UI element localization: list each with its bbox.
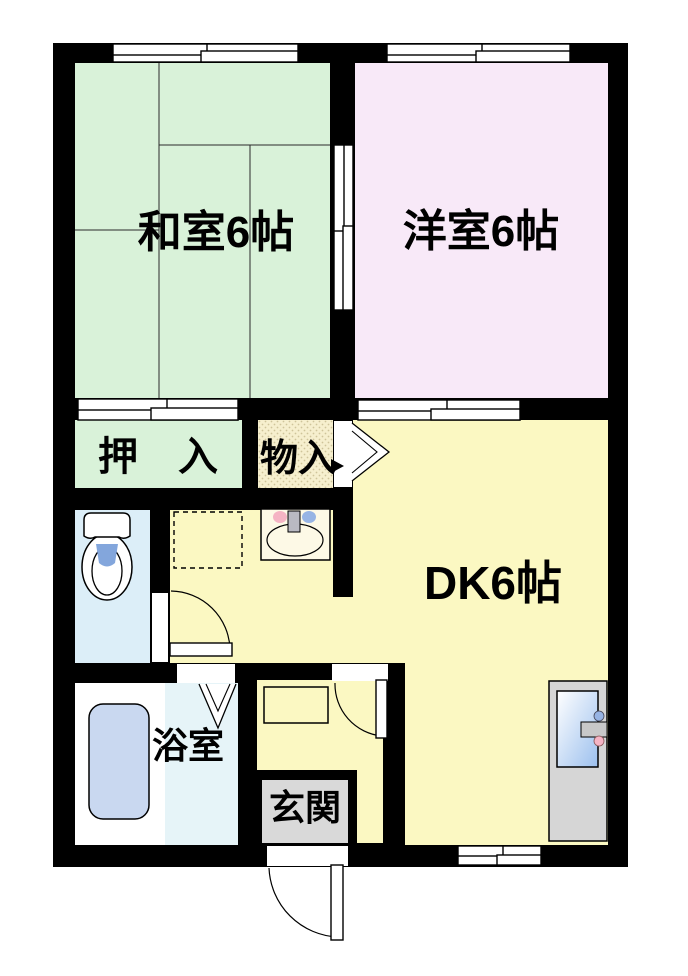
- monoire-door-opening: [334, 421, 352, 487]
- toilet-water: [96, 544, 118, 567]
- hall-door-opening: [332, 664, 388, 681]
- youshitsu-label: 洋室6帖: [403, 206, 559, 256]
- dk-window-icon: [458, 846, 541, 865]
- water-heater-appliance-icon: [549, 681, 607, 841]
- entrance-door-opening: [267, 846, 348, 866]
- genkan-label: 玄関: [269, 787, 341, 828]
- floor-plan-canvas: 和室6帖 洋室6帖 DK6帖 押 入 物入 浴室 玄関: [0, 0, 688, 971]
- monoire-label: 物入: [260, 438, 336, 480]
- washitsu-window-icon: [113, 44, 298, 62]
- appliance-cold-knob: [594, 711, 604, 721]
- washitsu-fusuma-icon: [78, 399, 238, 420]
- kitchen-dk-passage: [333, 597, 353, 663]
- room-dk-floor-upper: [353, 420, 608, 663]
- faucet-spout: [288, 511, 300, 532]
- cold-faucet-knob: [302, 511, 316, 523]
- toilet-door-opening: [152, 593, 168, 662]
- yokushitsu-label: 浴室: [152, 725, 224, 766]
- dk-label: DK6帖: [424, 557, 562, 609]
- kitchen-sink-icon: [261, 509, 330, 560]
- washitsu-youshitsu-sliding-door-icon: [334, 145, 353, 310]
- bathtub-icon: [89, 704, 149, 819]
- toilet-icon: [82, 513, 132, 600]
- toilet-tank: [84, 513, 130, 538]
- appliance-hot-knob: [594, 736, 604, 746]
- hot-faucet-knob: [273, 511, 287, 523]
- bath-door-opening: [177, 664, 235, 683]
- appliance-handle: [581, 722, 607, 737]
- youshitsu-dk-sliding-door-icon: [358, 400, 520, 420]
- youshitsu-window-icon: [387, 44, 570, 62]
- washitsu-label: 和室6帖: [138, 207, 294, 257]
- oshiire-label: 押 入: [98, 435, 218, 479]
- floor-plan: 和室6帖 洋室6帖 DK6帖 押 入 物入 浴室 玄関: [0, 0, 688, 971]
